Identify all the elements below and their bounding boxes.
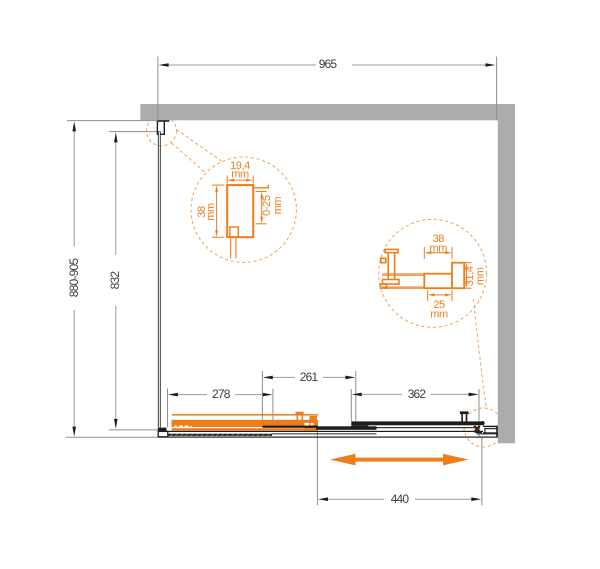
svg-text:880-905: 880-905 <box>67 258 81 298</box>
svg-text:mm: mm <box>474 267 486 285</box>
svg-text:261: 261 <box>300 370 319 384</box>
svg-text:362: 362 <box>408 387 427 401</box>
svg-text:mm: mm <box>430 309 448 321</box>
svg-text:832: 832 <box>108 271 122 290</box>
svg-text:mm: mm <box>205 203 217 221</box>
svg-text:mm: mm <box>272 197 284 215</box>
svg-text:mm: mm <box>231 169 249 181</box>
svg-text:mm: mm <box>430 243 448 255</box>
svg-text:440: 440 <box>391 492 410 506</box>
svg-text:278: 278 <box>212 387 231 401</box>
svg-text:965: 965 <box>319 57 338 71</box>
